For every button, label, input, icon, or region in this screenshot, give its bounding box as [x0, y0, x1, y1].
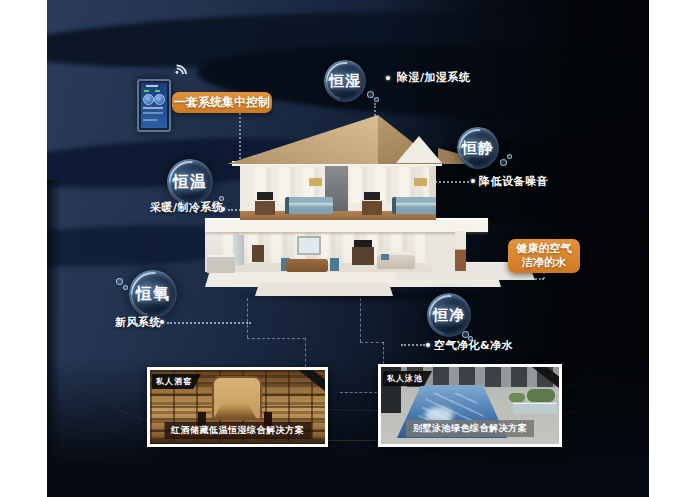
hengwen-dot [221, 207, 225, 211]
pool-plants [527, 389, 555, 402]
tiny-bubble [116, 278, 123, 285]
panel-indicator [144, 90, 149, 92]
house-dresser [255, 201, 275, 215]
bubble-hengyang-label: 恒氧 [136, 284, 170, 305]
panel-row [143, 119, 157, 121]
hengshi-dot [386, 76, 390, 80]
house-tv-upper [257, 192, 273, 200]
house-tv-upper [364, 192, 380, 200]
house-bed [285, 197, 333, 214]
control-label-box: 一套系统集中控制 [172, 92, 272, 113]
bubble-hengyang: 恒氧 [129, 270, 177, 318]
wine-card-caption: 红酒储藏低温恒湿综合解决方案 [164, 422, 311, 439]
control-label: 一套系统集中控制 [174, 94, 270, 111]
bubble-hengshi-label: 恒湿 [329, 72, 361, 91]
pool-card-badge: 私人泳池 [383, 371, 432, 386]
house-wall-art [309, 178, 322, 186]
smart-control-panel [137, 79, 171, 132]
house-window [297, 236, 321, 255]
house-kitchen-cabinets [207, 255, 235, 273]
hengjin-desc: 空气净化&净水 [434, 338, 513, 353]
panel-title-bar [146, 85, 158, 87]
house-mid-slab [205, 218, 488, 232]
hengjing-dot [471, 179, 475, 183]
house-base-step [255, 283, 393, 296]
bubble-hengjing-label: 恒静 [462, 139, 494, 158]
bubble-hengjing: 恒静 [457, 127, 499, 169]
panel-indicator [155, 90, 160, 92]
tiny-bubble [500, 159, 507, 166]
tiny-bubble [367, 91, 374, 98]
house-roof-left [227, 115, 378, 164]
infographic-stage: 一套系统集中控制 恒湿 除湿/加湿系统 恒静 降低设备噪音 恒温 采暖/制冷系统… [0, 0, 700, 497]
panel-dial [143, 94, 154, 105]
pool-photo: 私人泳池 别墅泳池绿色综合解决方案 [381, 367, 559, 444]
pool-card-caption: 别墅泳池绿色综合解决方案 [406, 420, 534, 437]
dark-canvas: 一套系统集中控制 恒湿 除湿/加湿系统 恒静 降低设备噪音 恒温 采暖/制冷系统… [47, 0, 649, 497]
house-sideboard [252, 245, 264, 262]
highlight-line1: 健康的空气 [517, 242, 572, 256]
hengwen-desc: 采暖/制冷系统 [150, 200, 224, 215]
panel-dial [154, 94, 165, 105]
pool-glass-fence [513, 403, 557, 414]
highlight-line2: 洁净的水 [522, 256, 566, 270]
bubble-hengjin-label: 恒净 [433, 306, 465, 325]
panel-screen [141, 83, 167, 128]
highlight-box: 健康的空气 洁净的水 [508, 239, 580, 273]
tiny-bubble [374, 97, 379, 102]
panel-row [143, 112, 163, 114]
panel-row [143, 107, 163, 109]
bubble-hengwen-label: 恒温 [173, 172, 207, 193]
tiny-bubble [123, 285, 128, 290]
pool-card: 私人泳池 别墅泳池绿色综合解决方案 [378, 364, 562, 447]
house-chair [330, 258, 339, 271]
wine-cellar-card: 私人酒窖 红酒储藏低温恒湿综合解决方案 [147, 367, 328, 447]
hengjing-desc: 降低设备噪音 [479, 174, 548, 189]
house-dining-table [286, 259, 328, 272]
hengyang-desc: 新风系统 [115, 315, 161, 330]
wine-card-badge: 私人酒窖 [152, 374, 201, 389]
house-pillow [381, 254, 389, 260]
pool-plants [509, 393, 525, 402]
hengshi-desc: 除湿/加湿系统 [397, 70, 471, 85]
bubble-hengshi: 恒湿 [324, 60, 366, 102]
house-tv-cabinet [352, 247, 374, 265]
bubble-hengwen: 恒温 [167, 159, 213, 205]
house-dresser [362, 201, 382, 215]
house-porch-column [455, 231, 466, 271]
house-wall-art [414, 178, 427, 186]
hengyang-dot [160, 320, 164, 324]
tiny-bubble [507, 154, 512, 159]
hengjin-dot [426, 343, 430, 347]
wine-cellar-photo: 私人酒窖 红酒储藏低温恒湿综合解决方案 [150, 370, 325, 444]
house-right-wall [425, 231, 455, 265]
house-bed [392, 197, 436, 214]
